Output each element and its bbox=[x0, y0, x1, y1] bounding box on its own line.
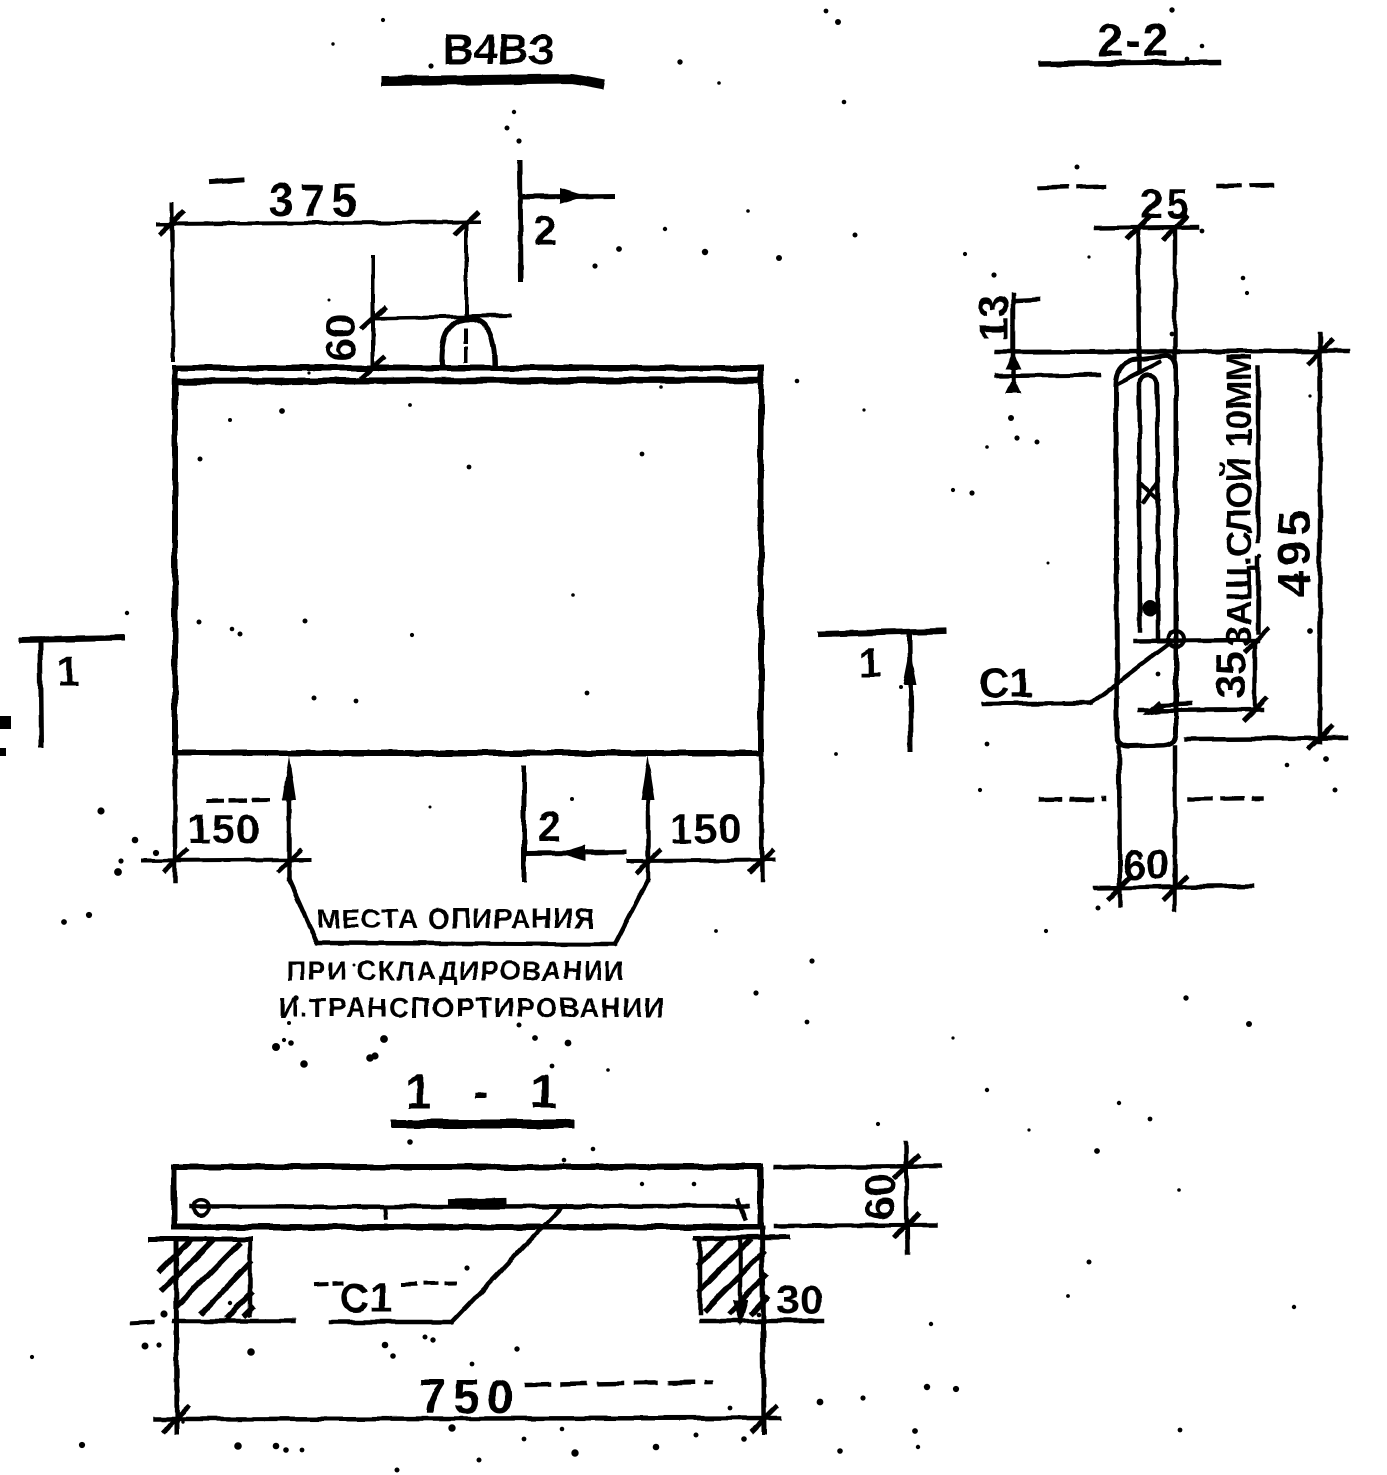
svg-text:495: 495 bbox=[1268, 505, 1320, 597]
svg-text:60: 60 bbox=[856, 1174, 903, 1221]
svg-text:1: 1 bbox=[858, 639, 881, 686]
svg-text:В4ВЗ: В4ВЗ bbox=[443, 26, 555, 74]
svg-text:2-2: 2-2 bbox=[1098, 14, 1170, 66]
svg-text:60: 60 bbox=[1123, 841, 1170, 888]
svg-text:2: 2 bbox=[533, 207, 556, 254]
svg-text:60: 60 bbox=[317, 315, 364, 362]
svg-text:1: 1 bbox=[56, 648, 79, 695]
svg-text:150: 150 bbox=[187, 805, 260, 852]
svg-text:1 - 1: 1 - 1 bbox=[405, 1066, 571, 1119]
svg-text:ПРИ СКЛАДИРОВАНИИ: ПРИ СКЛАДИРОВАНИИ bbox=[287, 956, 626, 986]
svg-text:750: 750 bbox=[419, 1371, 520, 1424]
svg-text:375: 375 bbox=[269, 174, 364, 226]
svg-text:150: 150 bbox=[669, 805, 742, 852]
svg-text:С1: С1 bbox=[979, 659, 1033, 706]
svg-text:30: 30 bbox=[777, 1276, 824, 1323]
svg-text:И.ТРАНСПОРТИРОВАНИИ: И.ТРАНСПОРТИРОВАНИИ bbox=[278, 992, 665, 1023]
svg-text:С1: С1 bbox=[339, 1274, 393, 1321]
svg-text:ЗАЩ.СЛОЙ 10ММ: ЗАЩ.СЛОЙ 10ММ bbox=[1219, 353, 1259, 647]
svg-text:2: 2 bbox=[537, 803, 560, 850]
svg-text:13: 13 bbox=[970, 295, 1017, 342]
svg-text:МЕСТА ОПИРАНИЯ: МЕСТА ОПИРАНИЯ bbox=[317, 903, 595, 934]
svg-text:35: 35 bbox=[1207, 652, 1254, 699]
